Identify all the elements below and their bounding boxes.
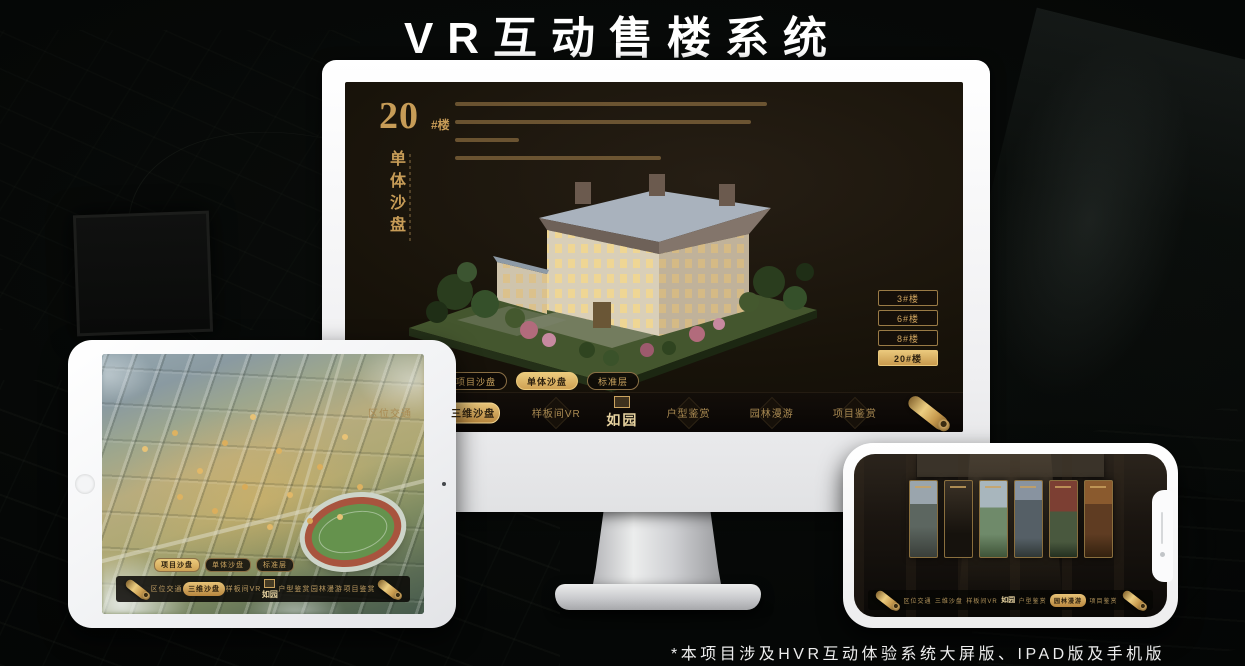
subtab-single-sandbox[interactable]: 单体沙盘 bbox=[516, 372, 578, 390]
sandbox-subtab-group: 项目沙盘 单体沙盘 标准层 bbox=[445, 372, 639, 390]
gallery-panel-6[interactable] bbox=[1084, 480, 1113, 558]
nav-item-unit-gallery[interactable]: 户型鉴赏 bbox=[656, 405, 722, 420]
scroll-menu-icon[interactable] bbox=[906, 393, 951, 432]
phone-speaker bbox=[1161, 512, 1163, 544]
phone-nav-3d-sandbox[interactable]: 三维沙盘 bbox=[935, 596, 963, 605]
nav-item-project-gallery[interactable]: 项目鉴赏 bbox=[822, 405, 888, 420]
tablet-device: 项目沙盘 单体沙盘 标准层 区位交通 三维沙盘 样板间VR 如园 户型鉴赏 园林… bbox=[68, 340, 456, 628]
phone-nav-garden-roam[interactable]: 园林漫游 bbox=[1050, 594, 1086, 607]
phone-camera bbox=[1160, 552, 1165, 557]
tablet-nav-project-gallery[interactable]: 项目鉴赏 bbox=[343, 584, 375, 594]
monitor-stand-neck bbox=[592, 510, 722, 590]
scroll-menu-icon-left[interactable] bbox=[124, 577, 150, 600]
phone-nav-showroom-vr[interactable]: 样板间VR bbox=[966, 596, 997, 605]
tablet-camera-dot bbox=[442, 482, 446, 486]
phone-nav-unit-gallery[interactable]: 户型鉴赏 bbox=[1019, 596, 1047, 605]
tablet-nav-showroom-vr[interactable]: 样板间VR bbox=[226, 584, 262, 594]
tablet-brand-logo-icon bbox=[264, 579, 275, 588]
floor-button-8[interactable]: 8#楼 bbox=[878, 330, 938, 346]
tablet-nav-location[interactable]: 区位交通 bbox=[151, 584, 183, 594]
building-number-unit: #楼 bbox=[431, 116, 450, 133]
phone-scroll-icon-right[interactable] bbox=[1121, 588, 1147, 611]
floor-button-3[interactable]: 3#楼 bbox=[878, 290, 938, 306]
phone-notch bbox=[1152, 490, 1173, 582]
building-3d-model[interactable] bbox=[397, 152, 827, 392]
monitor-stand-base bbox=[555, 584, 761, 610]
brand-logo: 如园 bbox=[606, 396, 638, 430]
text-line bbox=[455, 120, 751, 124]
tablet-brand-logo: 如园 bbox=[262, 579, 278, 600]
gallery-panel-3[interactable] bbox=[979, 480, 1008, 558]
cloud-overlay bbox=[102, 354, 424, 614]
gallery-panel-1[interactable] bbox=[909, 480, 938, 558]
phone-nav-location[interactable]: 区位交通 bbox=[903, 596, 931, 605]
footnote-caption: *本项目涉及HVR互动体验系统大屏版、IPAD版及手机版 bbox=[671, 640, 1165, 664]
phone-device: 区位交通 三维沙盘 样板间VR 如园 户型鉴赏 园林漫游 项目鉴赏 bbox=[843, 443, 1178, 628]
gallery-panel-strip bbox=[909, 480, 1113, 558]
tablet-subtab-standard-floor[interactable]: 标准层 bbox=[256, 558, 294, 572]
text-line bbox=[455, 138, 519, 142]
gallery-panel-4[interactable] bbox=[1014, 480, 1043, 558]
tablet-nav-unit-gallery[interactable]: 户型鉴赏 bbox=[278, 584, 310, 594]
page-title: VR互动售楼系统 bbox=[0, 2, 1245, 66]
tablet-subtab-group: 项目沙盘 单体沙盘 标准层 bbox=[154, 558, 294, 572]
tablet-screen: 项目沙盘 单体沙盘 标准层 区位交通 三维沙盘 样板间VR 如园 户型鉴赏 园林… bbox=[102, 354, 424, 614]
text-line bbox=[455, 102, 767, 106]
phone-nav-project-gallery[interactable]: 项目鉴赏 bbox=[1089, 596, 1117, 605]
floor-button-20-active[interactable]: 20#楼 bbox=[878, 350, 938, 366]
nav-item-garden-roam[interactable]: 园林漫游 bbox=[739, 405, 805, 420]
tablet-home-button[interactable] bbox=[75, 474, 95, 494]
floor-button-6[interactable]: 6#楼 bbox=[878, 310, 938, 326]
brand-logo-icon bbox=[614, 396, 630, 408]
nav-item-showroom-vr[interactable]: 样板间VR bbox=[523, 405, 589, 420]
phone-brand-logo: 如园 bbox=[1001, 595, 1015, 605]
phone-navbar: 区位交通 三维沙盘 样板间VR 如园 户型鉴赏 园林漫游 项目鉴赏 bbox=[868, 590, 1153, 610]
gallery-panel-5[interactable] bbox=[1049, 480, 1078, 558]
phone-screen: 区位交通 三维沙盘 样板间VR 如园 户型鉴赏 园林漫游 项目鉴赏 bbox=[854, 454, 1167, 617]
background-plaque-photo bbox=[73, 211, 213, 337]
subtab-standard-floor[interactable]: 标准层 bbox=[587, 372, 639, 390]
tablet-navbar: 区位交通 三维沙盘 样板间VR 如园 户型鉴赏 园林漫游 项目鉴赏 bbox=[116, 576, 410, 602]
tablet-nav-garden-roam[interactable]: 园林漫游 bbox=[311, 584, 343, 594]
scroll-menu-icon-right[interactable] bbox=[376, 577, 402, 600]
gallery-panel-2[interactable] bbox=[944, 480, 973, 558]
tablet-nav-3d-sandbox[interactable]: 三维沙盘 bbox=[183, 582, 225, 596]
building-number-heading: 20 bbox=[379, 94, 419, 138]
tablet-subtab-single-sandbox[interactable]: 单体沙盘 bbox=[205, 558, 251, 572]
tablet-subtab-project-sandbox[interactable]: 项目沙盘 bbox=[154, 558, 200, 572]
phone-scroll-icon-left[interactable] bbox=[874, 588, 900, 611]
floor-button-group: 3#楼 6#楼 8#楼 20#楼 bbox=[878, 290, 938, 366]
